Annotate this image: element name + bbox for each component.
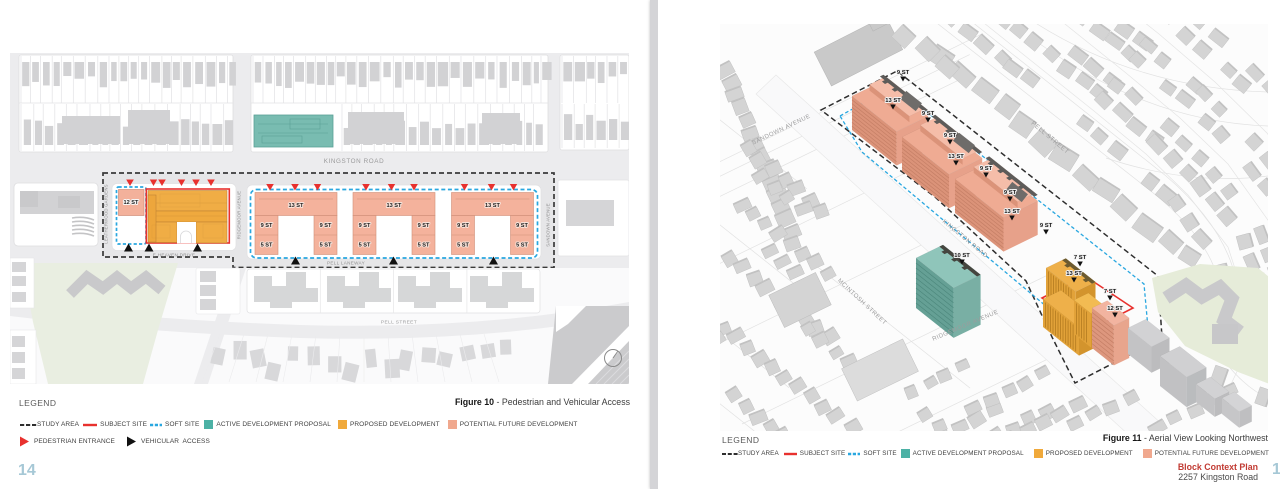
svg-text:13 ST: 13 ST (1004, 209, 1020, 215)
svg-text:9 ST: 9 ST (261, 223, 273, 229)
svg-text:13 ST: 13 ST (485, 203, 501, 209)
svg-text:9 ST: 9 ST (922, 111, 935, 117)
svg-text:9 ST: 9 ST (320, 223, 332, 229)
svg-text:7 ST: 7 ST (1074, 255, 1087, 261)
svg-text:12 ST: 12 ST (124, 200, 140, 206)
svg-text:12 ST: 12 ST (1107, 306, 1123, 312)
svg-text:PELL STREET: PELL STREET (381, 320, 417, 326)
svg-text:9 ST: 9 ST (516, 223, 528, 229)
svg-text:7 ST: 7 ST (1104, 289, 1117, 295)
svg-text:10 ST: 10 ST (954, 253, 970, 259)
svg-text:5 ST: 5 ST (516, 243, 528, 249)
svg-text:9 ST: 9 ST (1040, 223, 1053, 229)
svg-text:13 ST: 13 ST (885, 98, 901, 104)
svg-text:RIDGEMOOR AVENUE: RIDGEMOOR AVENUE (237, 191, 242, 239)
svg-text:PELL LANEWAY: PELL LANEWAY (327, 261, 365, 266)
svg-text:5 ST: 5 ST (320, 243, 332, 249)
svg-text:5 ST: 5 ST (261, 243, 273, 249)
svg-text:9 ST: 9 ST (457, 223, 469, 229)
svg-text:13 ST: 13 ST (1066, 271, 1082, 277)
svg-text:SANDOWN AVENUE: SANDOWN AVENUE (546, 203, 551, 247)
svg-text:13 ST: 13 ST (948, 154, 964, 160)
svg-text:5 ST: 5 ST (457, 243, 469, 249)
svg-text:13 ST: 13 ST (387, 203, 403, 209)
svg-text:5 ST: 5 ST (418, 243, 430, 249)
svg-text:9 ST: 9 ST (418, 223, 430, 229)
svg-text:9 ST: 9 ST (944, 133, 957, 139)
svg-text:5 ST: 5 ST (359, 243, 371, 249)
svg-text:9 ST: 9 ST (980, 166, 993, 172)
svg-text:9 ST: 9 ST (359, 223, 371, 229)
svg-text:KINGSTON ROAD: KINGSTON ROAD (324, 158, 385, 165)
svg-text:13 ST: 13 ST (289, 203, 305, 209)
svg-text:E HEAVEN DRIVE: E HEAVEN DRIVE (153, 253, 195, 258)
svg-text:9 ST: 9 ST (1004, 190, 1017, 196)
svg-text:LEATHERWOOD GARDENS: LEATHERWOOD GARDENS (104, 184, 109, 244)
svg-text:9 ST: 9 ST (897, 70, 910, 76)
